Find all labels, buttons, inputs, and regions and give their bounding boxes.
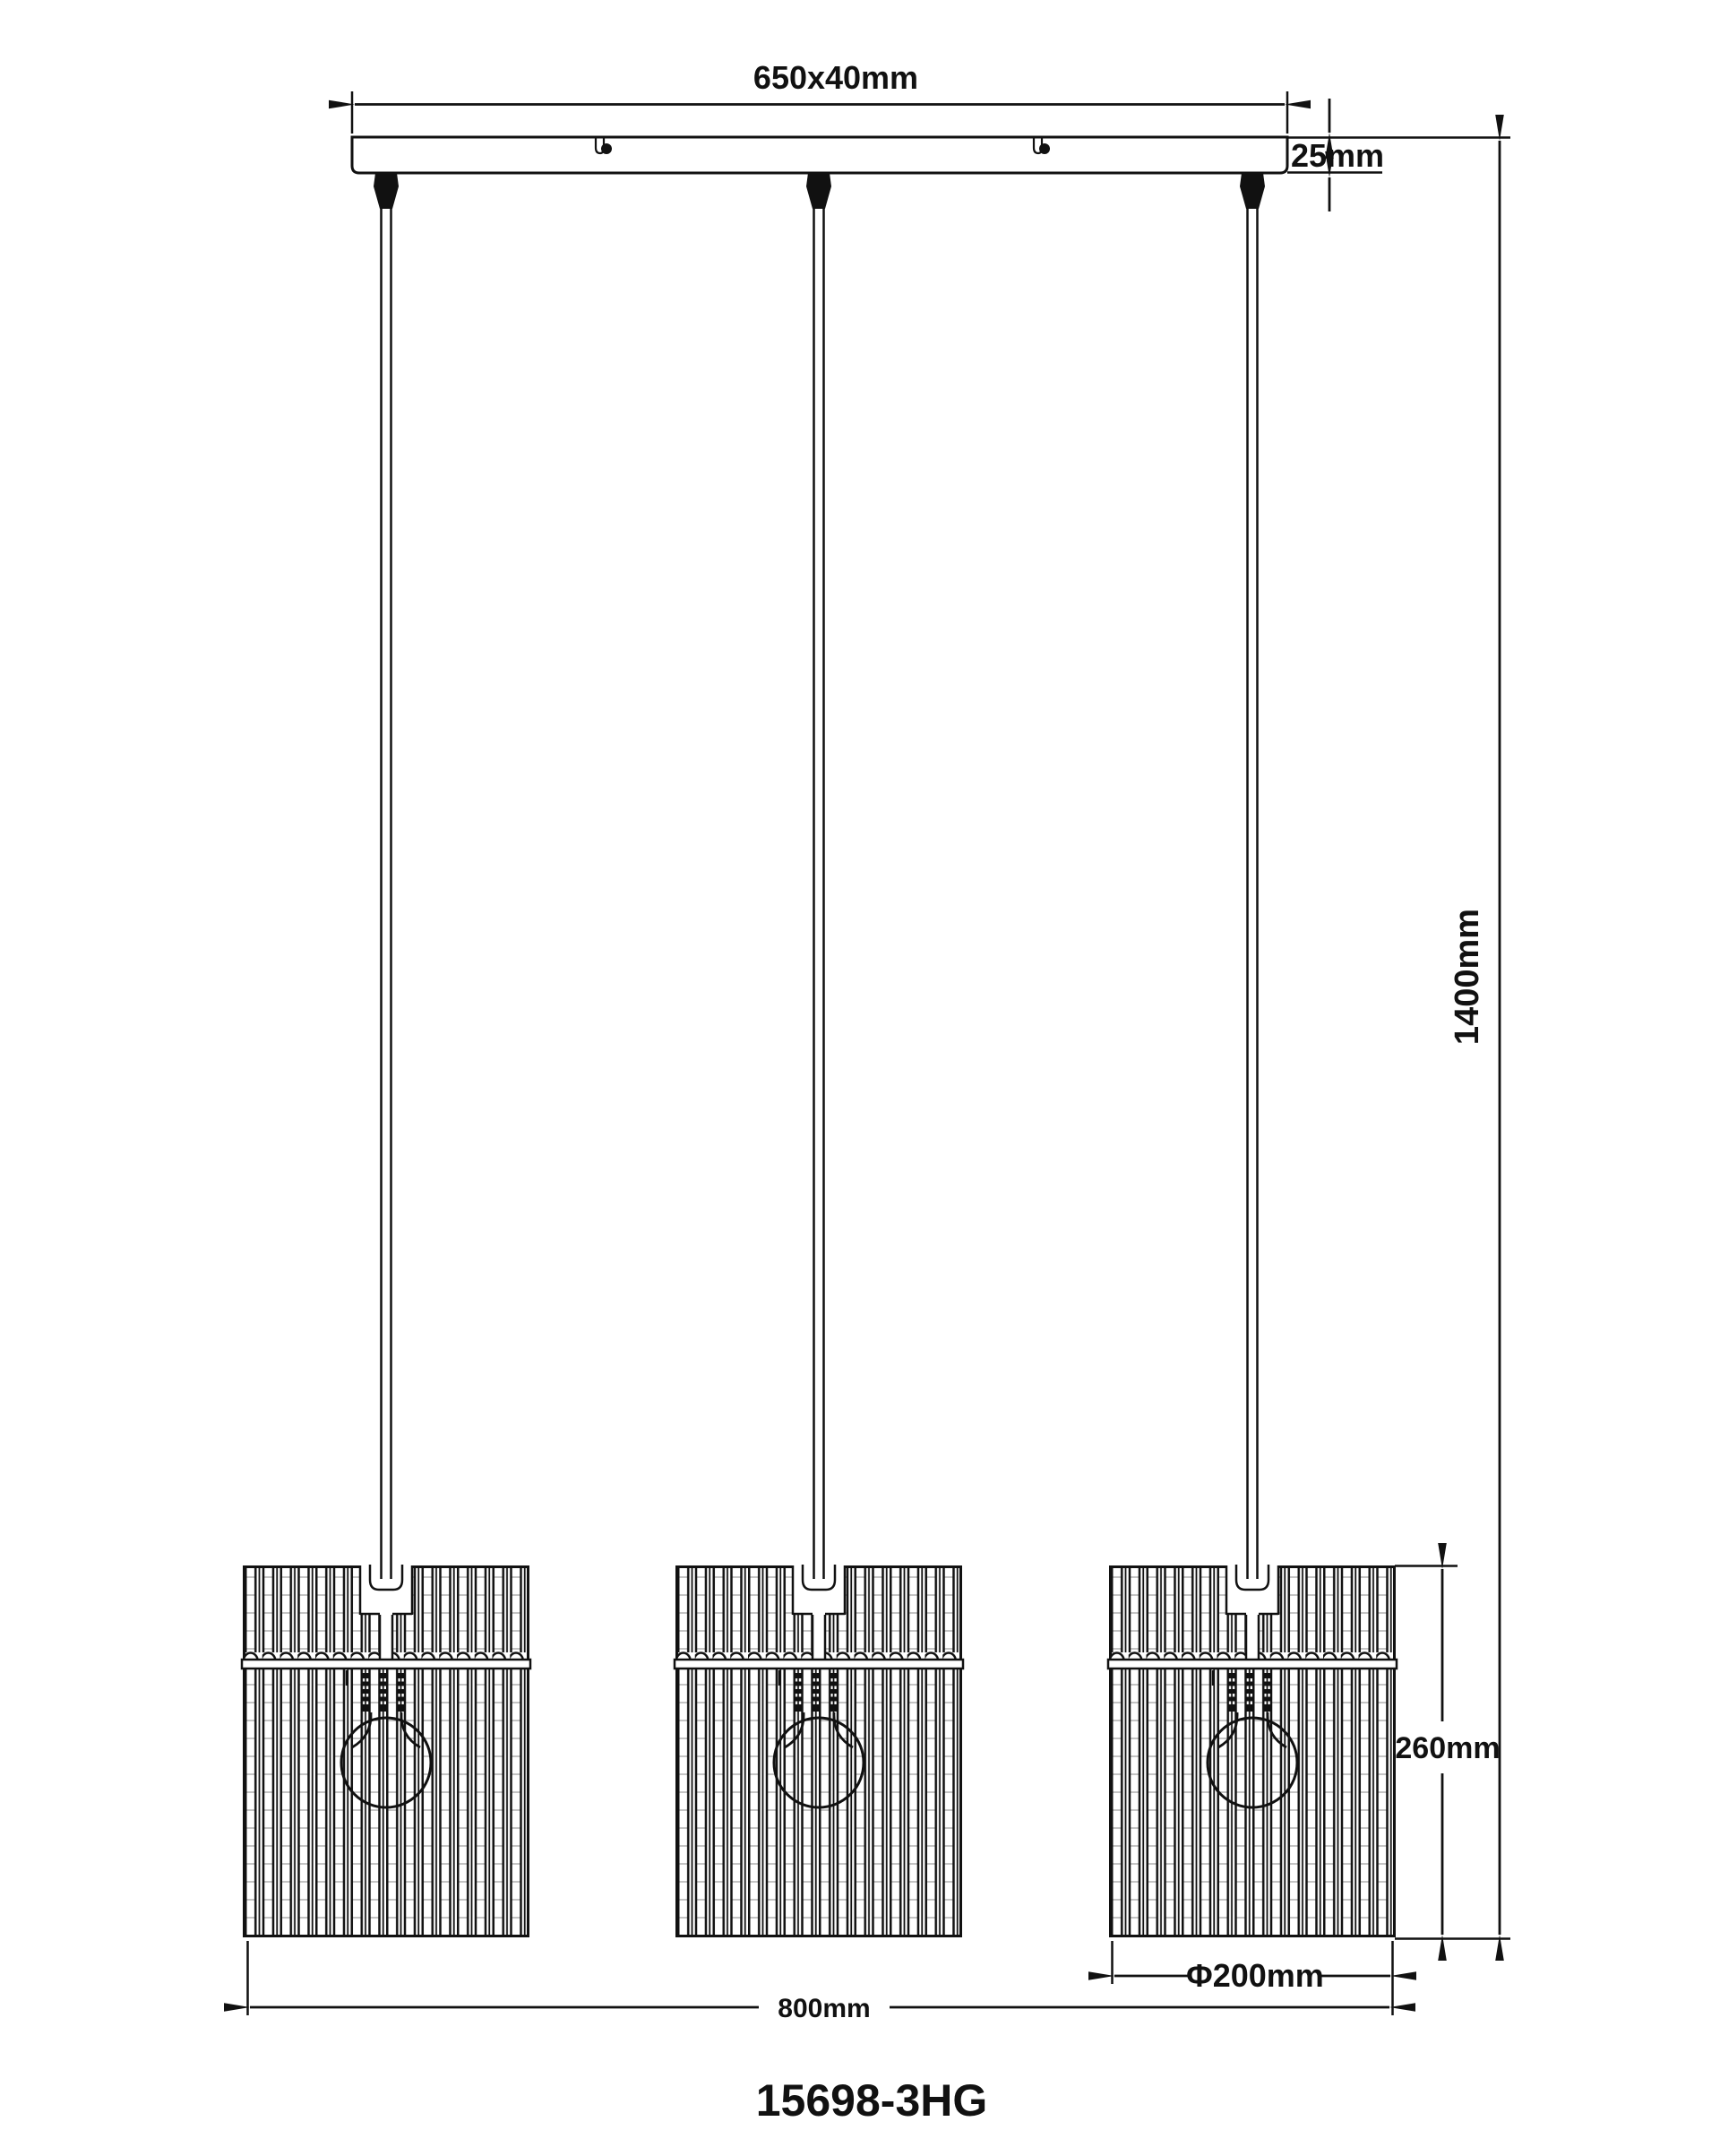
drawing-canvas: 650x40mm 25mm 1400mm 260mm Φ200mm 800mm … — [0, 0, 1720, 2156]
dim-canopy-size-label: 650x40mm — [753, 59, 918, 96]
dim-shade-height-label: 260mm — [1395, 1731, 1500, 1765]
model-number-label: 15698-3HG — [756, 2075, 988, 2126]
ceiling-plate — [352, 137, 1287, 173]
dim-drop-height-label: 1400mm — [1449, 909, 1486, 1045]
technical-drawing-page: 650x40mm 25mm 1400mm 260mm Φ200mm 800mm … — [0, 0, 1720, 2156]
dim-canopy-thickness-label: 25mm — [1291, 137, 1384, 174]
dim-shade-diameter-label: Φ200mm — [1186, 1957, 1324, 1994]
dim-overall-width-label: 800mm — [778, 1994, 870, 2023]
